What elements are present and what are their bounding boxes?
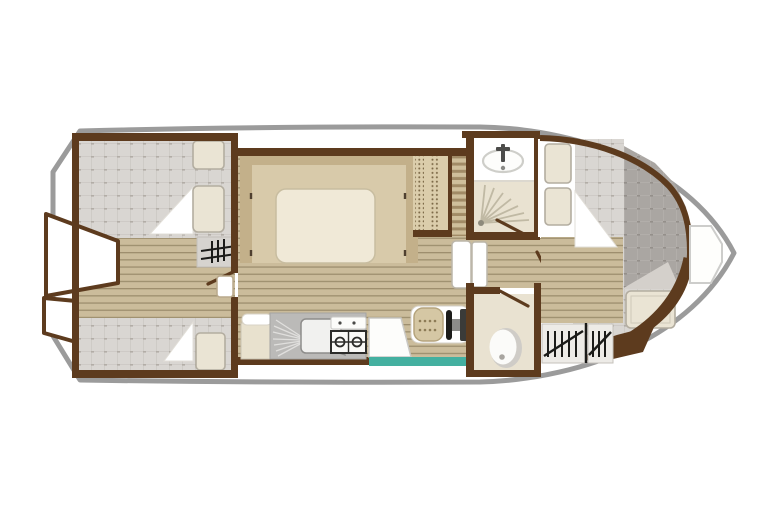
- wardrobe-icon: [413, 150, 452, 237]
- shower-wall-top: [462, 131, 540, 138]
- berth-cushion-icon: [193, 186, 224, 232]
- saloon: [231, 148, 474, 366]
- berth-cushion-icon: [193, 141, 224, 169]
- room-divider-line: [474, 180, 534, 182]
- aft-cabin: [44, 133, 240, 378]
- ladder-hatch-icon: [588, 324, 613, 363]
- berth-cushion-icon: [545, 144, 571, 183]
- boat-floorplan: [0, 0, 768, 512]
- fridge-top: [242, 314, 272, 325]
- double-bed-icon: [240, 155, 418, 263]
- shower-wall-left: [466, 132, 474, 240]
- helm-station: [411, 306, 473, 343]
- wc-room: [466, 283, 541, 377]
- helm-seat-icon: [414, 308, 443, 341]
- door-leaf-icon: [452, 241, 471, 288]
- aft-wall-bottom: [72, 370, 238, 378]
- shower-wall-bottom: [466, 232, 540, 240]
- aft-wall-left: [72, 133, 79, 378]
- door-leaf-icon: [217, 276, 233, 297]
- aft-divider-wall-upper: [231, 141, 238, 273]
- wc-wall-left: [466, 283, 474, 377]
- gas-stove-icon: [331, 317, 366, 353]
- berth-cushion-icon: [196, 333, 225, 370]
- shower-room: [462, 131, 540, 240]
- bow-cabin: [538, 138, 722, 363]
- aft-wall-top: [72, 133, 238, 141]
- stern-step: [44, 298, 76, 342]
- berth-cushion-icon: [545, 188, 571, 225]
- wc-wall-right: [534, 283, 541, 377]
- corridor: [452, 238, 552, 288]
- saloon-wall-top: [231, 148, 474, 156]
- steering-wheel-icon: [446, 310, 452, 340]
- mattress: [276, 189, 375, 263]
- steering-column: [452, 319, 460, 331]
- wc-wall-top: [474, 287, 500, 294]
- bow-floor-planks: [541, 237, 623, 323]
- faucet-icon: [501, 144, 505, 162]
- teal-step: [369, 357, 468, 366]
- ladder-hatch-icon: [542, 324, 585, 363]
- fridge-icon: [241, 323, 273, 359]
- door-leaf-icon: [472, 242, 487, 287]
- shelf-steps-icon: [452, 150, 468, 236]
- wardrobe-wall-stub: [413, 230, 452, 237]
- floorplan-canvas: [0, 0, 768, 512]
- wc-wall-bottom: [466, 370, 541, 377]
